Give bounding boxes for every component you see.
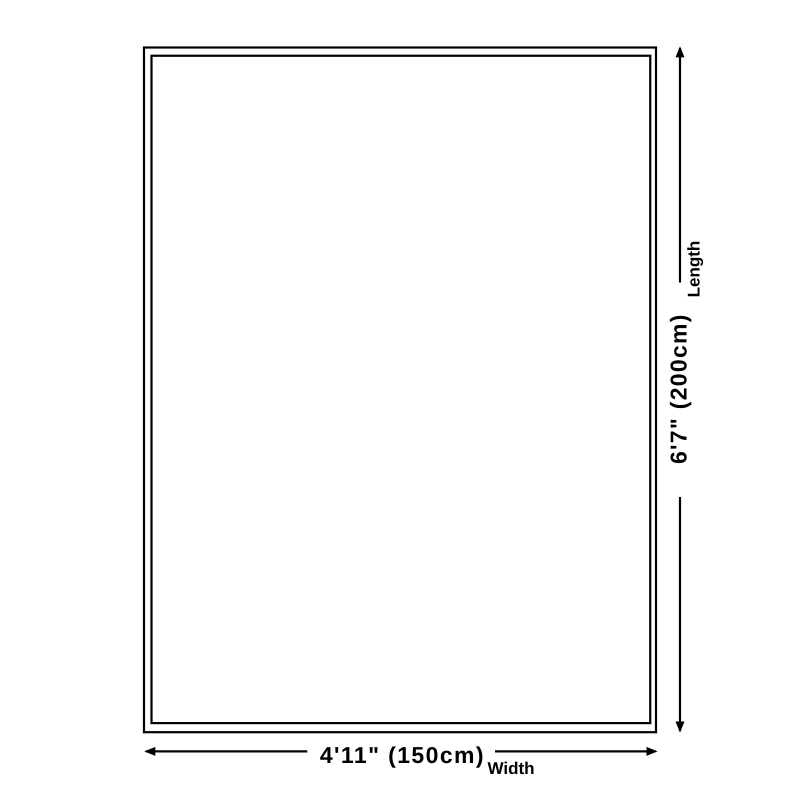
svg-text:Width: Width [488,759,535,778]
svg-text:Length: Length [685,241,704,298]
svg-text:6'7" (200cm): 6'7" (200cm) [665,315,691,465]
svg-text:4'11" (150cm): 4'11" (150cm) [320,742,484,768]
